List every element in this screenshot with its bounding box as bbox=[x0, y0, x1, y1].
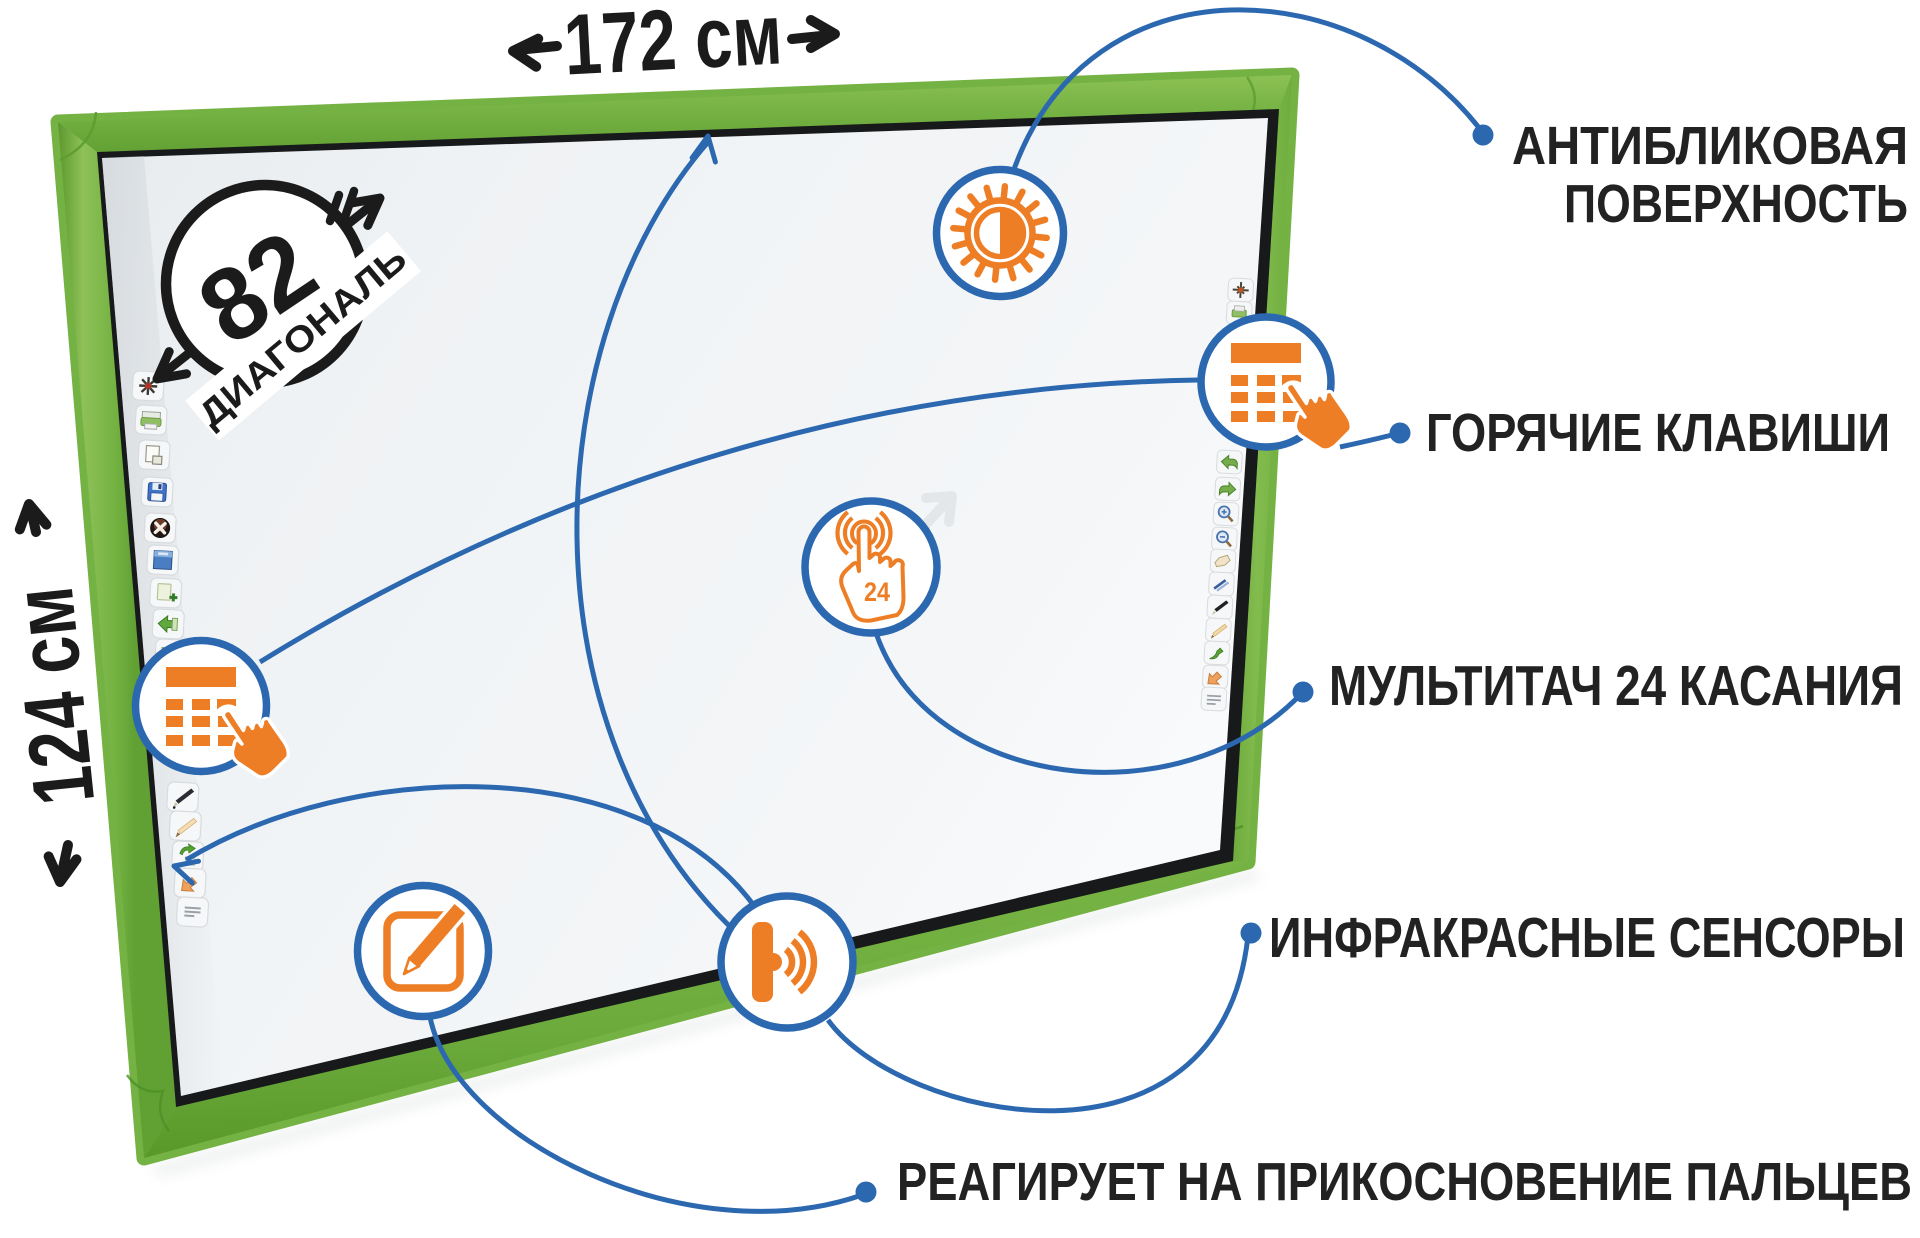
svg-text:172 см: 172 см bbox=[562, 0, 785, 94]
svg-text:ИНФРАКРАСНЫЕ СЕНСОРЫ: ИНФРАКРАСНЫЕ СЕНСОРЫ bbox=[1269, 906, 1905, 970]
svg-text:24: 24 bbox=[864, 577, 890, 607]
svg-text:МУЛЬТИТАЧ 24 КАСАНИЯ: МУЛЬТИТАЧ 24 КАСАНИЯ bbox=[1329, 654, 1903, 718]
svg-text:ПОВЕРХНОСТЬ: ПОВЕРХНОСТЬ bbox=[1564, 174, 1908, 234]
svg-text:АНТИБЛИКОВАЯ: АНТИБЛИКОВАЯ bbox=[1512, 116, 1908, 176]
svg-text:РЕАГИРУЕТ НА ПРИКОСНОВЕНИЕ ПАЛ: РЕАГИРУЕТ НА ПРИКОСНОВЕНИЕ ПАЛЬЦЕВ bbox=[897, 1152, 1912, 1212]
svg-text:ГОРЯЧИЕ КЛАВИШИ: ГОРЯЧИЕ КЛАВИШИ bbox=[1426, 403, 1890, 463]
